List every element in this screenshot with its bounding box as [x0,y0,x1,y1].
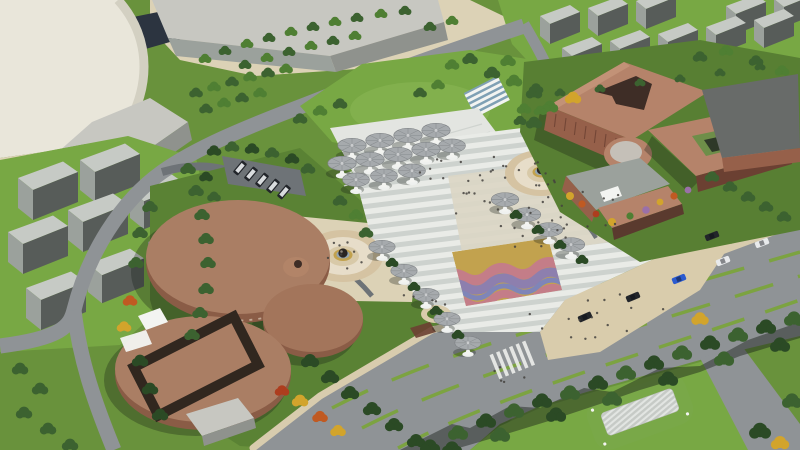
site-rendering [0,0,800,450]
sphere-sculpture [338,248,347,257]
rendering-stage [0,0,800,450]
